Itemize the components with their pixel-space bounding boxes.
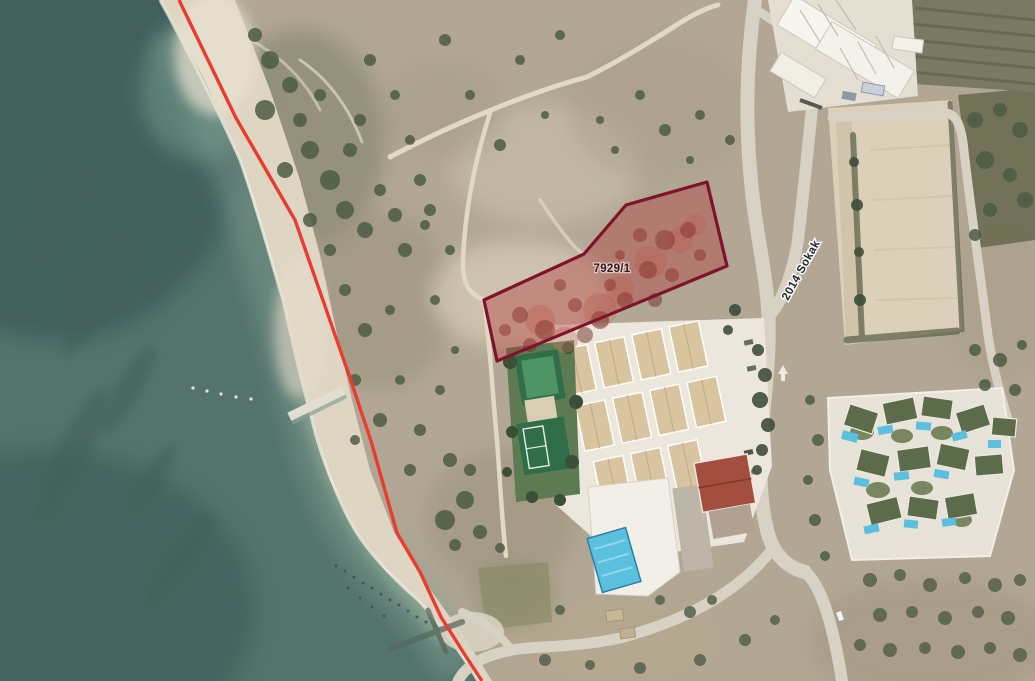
bush	[430, 295, 440, 305]
bush	[435, 510, 455, 530]
bush	[1009, 384, 1021, 396]
bush	[374, 184, 386, 196]
bush	[277, 162, 293, 178]
bush	[248, 28, 262, 42]
bush	[967, 112, 983, 128]
bush	[820, 551, 830, 561]
bush	[439, 34, 451, 46]
bush	[596, 116, 604, 124]
bush	[694, 654, 706, 666]
map-viewport[interactable]: 7929/1 2014 Sokak	[0, 0, 1035, 681]
bush	[655, 595, 665, 605]
bush	[1003, 168, 1017, 182]
bush	[577, 327, 593, 343]
bush	[659, 124, 671, 136]
bush	[354, 114, 366, 126]
bush	[404, 464, 416, 476]
bush	[906, 606, 918, 618]
beach-shed	[605, 609, 623, 622]
bush	[555, 30, 565, 40]
bush	[398, 243, 412, 257]
bush	[988, 578, 1002, 592]
bush	[695, 110, 705, 120]
bush	[684, 606, 696, 618]
bush	[494, 139, 506, 151]
bush	[435, 385, 445, 395]
construction-site	[768, 0, 924, 112]
bush	[707, 595, 717, 605]
bush	[303, 213, 317, 227]
bush	[723, 325, 733, 335]
bush	[464, 464, 476, 476]
bush	[854, 247, 864, 257]
bush	[611, 146, 619, 154]
bush	[339, 284, 351, 296]
bush	[456, 491, 474, 509]
bush	[1001, 611, 1015, 625]
bush	[761, 418, 775, 432]
bush	[1014, 574, 1026, 586]
bush	[938, 611, 952, 625]
bush	[449, 539, 461, 551]
bush	[809, 514, 821, 526]
bush	[539, 654, 551, 666]
bush	[343, 143, 357, 157]
bush	[686, 156, 694, 164]
bush	[752, 344, 764, 356]
bush	[358, 323, 372, 337]
bush	[805, 395, 815, 405]
bush	[993, 103, 1007, 117]
bush	[923, 578, 937, 592]
bush	[854, 294, 866, 306]
bush	[443, 453, 457, 467]
bush	[395, 375, 405, 385]
bush	[1017, 340, 1027, 350]
bush	[282, 77, 298, 93]
villa-complex	[828, 388, 1017, 560]
bush	[495, 543, 505, 553]
bush	[756, 444, 768, 456]
bush	[320, 170, 340, 190]
bush	[293, 113, 307, 127]
bush	[465, 90, 475, 100]
bush	[473, 525, 487, 539]
bush	[729, 304, 741, 316]
bush	[555, 605, 565, 615]
bush	[803, 475, 813, 485]
bush	[635, 90, 645, 100]
bush	[1017, 192, 1033, 208]
bush	[1013, 648, 1027, 662]
bush	[451, 346, 459, 354]
bush	[414, 424, 426, 436]
bush	[972, 606, 984, 618]
bush	[357, 222, 373, 238]
bush	[812, 434, 824, 446]
bush	[390, 90, 400, 100]
bush	[420, 220, 430, 230]
bush	[951, 645, 965, 659]
bush	[993, 353, 1007, 367]
bush	[851, 199, 863, 211]
bush	[585, 660, 595, 670]
bush	[373, 413, 387, 427]
bush	[261, 51, 279, 69]
bush	[324, 244, 336, 256]
bush	[445, 245, 455, 255]
bush	[255, 100, 275, 120]
bush	[849, 157, 859, 167]
bush	[314, 89, 326, 101]
bush	[515, 55, 525, 65]
bush	[739, 634, 751, 646]
bush	[336, 201, 354, 219]
bush	[385, 305, 395, 315]
bush	[984, 642, 996, 654]
bush	[770, 615, 780, 625]
bush	[919, 642, 931, 654]
parcel-label: 7929/1	[594, 263, 631, 275]
bush	[863, 573, 877, 587]
bush	[873, 608, 887, 622]
bush	[854, 639, 866, 651]
bush	[969, 229, 981, 241]
beach-shed	[619, 627, 635, 639]
bush	[752, 465, 762, 475]
bush	[634, 662, 646, 674]
bush	[388, 208, 402, 222]
bush	[424, 204, 436, 216]
bush	[1012, 122, 1028, 138]
bush	[959, 572, 971, 584]
bush	[405, 135, 415, 145]
bush	[350, 435, 360, 445]
bush	[725, 135, 735, 145]
bush	[894, 569, 906, 581]
bush	[758, 368, 772, 382]
bush	[301, 141, 319, 159]
bush	[983, 203, 997, 217]
bush	[364, 54, 376, 66]
bush	[752, 392, 768, 408]
bush	[883, 643, 897, 657]
bush	[979, 379, 991, 391]
bush	[976, 151, 994, 169]
bush	[969, 344, 981, 356]
bush	[541, 111, 549, 119]
satellite-map[interactable]: 7929/1 2014 Sokak	[0, 0, 1035, 681]
bush	[414, 174, 426, 186]
